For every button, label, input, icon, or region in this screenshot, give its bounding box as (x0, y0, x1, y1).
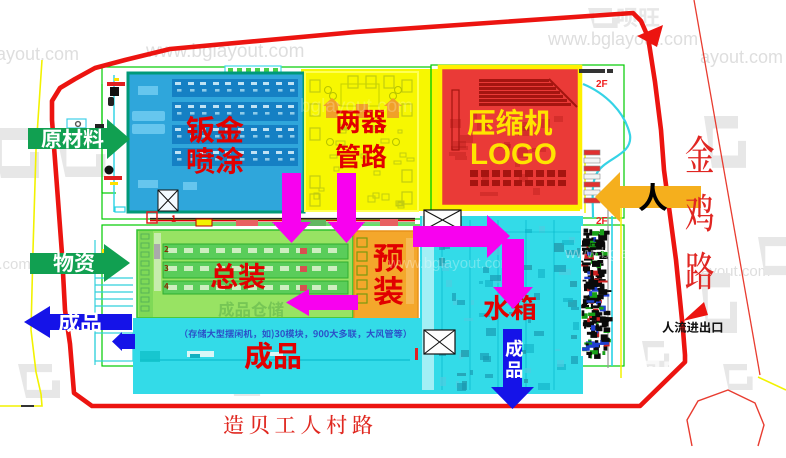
svg-text:bglayout.com: bglayout.com (300, 96, 413, 117)
svg-text:2F: 2F (596, 79, 608, 90)
svg-text:www.bglayout.com: www.bglayout.com (564, 245, 690, 262)
svg-text:ayout.com: ayout.com (0, 44, 79, 64)
svg-text:LOGO: LOGO (470, 138, 557, 171)
svg-text:www.bglayout.com: www.bglayout.com (387, 255, 513, 272)
svg-text:2F: 2F (596, 216, 608, 227)
svg-text:www.bglayout.com: www.bglayout.com (547, 29, 698, 49)
svg-text:yout.com: yout.com (0, 256, 31, 273)
svg-text:ayout.com: ayout.com (700, 47, 783, 67)
